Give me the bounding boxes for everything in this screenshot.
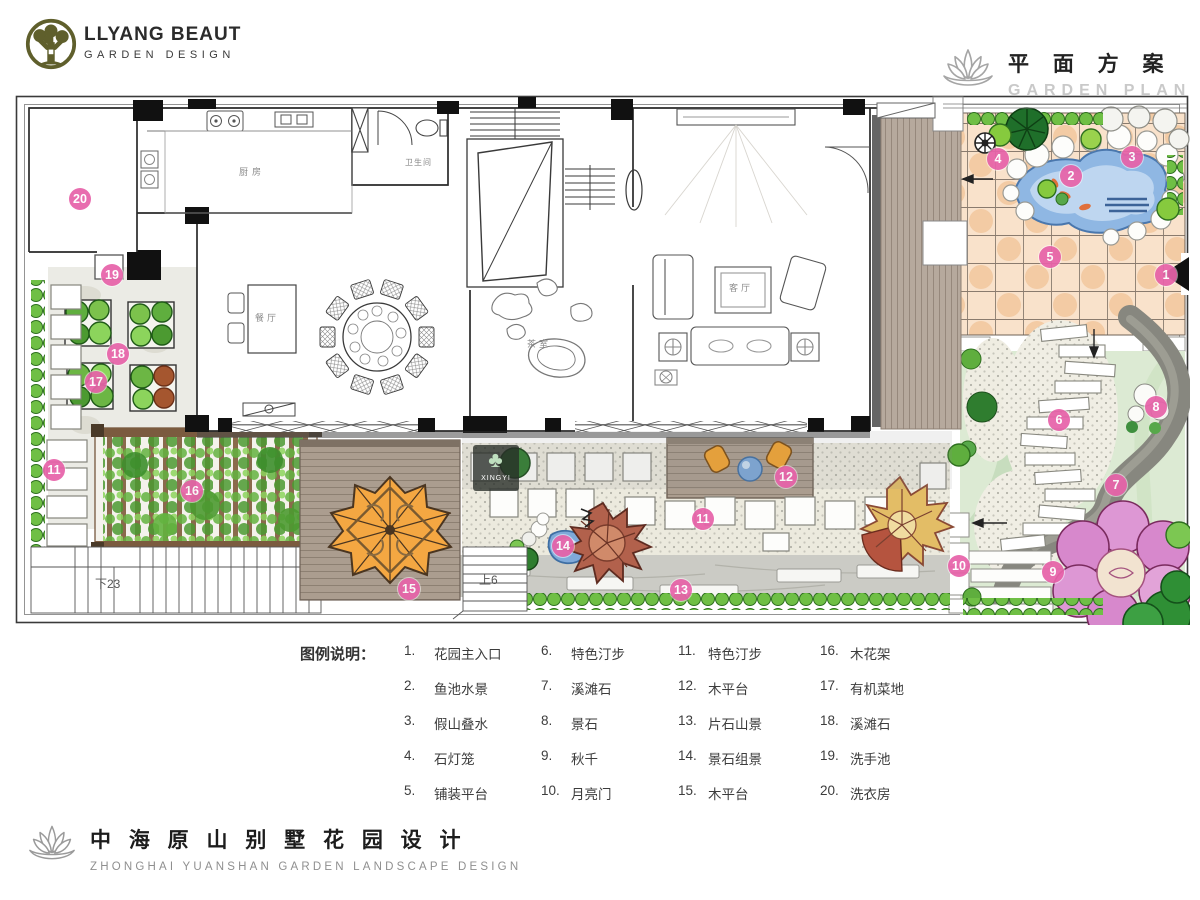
legend-item: 10.月亮门 [541,783,625,818]
project-title-en: ZHONGHAI YUANSHAN GARDEN LANDSCAPE DESIG… [90,861,521,873]
legend-item: 3.假山叠水 [404,713,502,748]
lotus-icon [942,44,994,92]
legend-item: 6.特色汀步 [541,643,625,678]
legend-item: 8.景石 [541,713,625,748]
legend-item: 20.洗衣房 [820,783,904,818]
plan-title-lotus [942,44,994,97]
brand-text: LLYANG BEAUT GARDEN DESIGN [84,24,241,61]
legend-item: 11.特色汀步 [678,643,762,678]
legend-item: 7.溪滩石 [541,678,625,713]
project-title-cn: 中 海 原 山 别 墅 花 园 设 计 [90,824,521,854]
brand-logo [25,18,77,75]
legend-item: 15.木平台 [678,783,762,818]
footer-title: 中 海 原 山 别 墅 花 园 设 计 ZHONGHAI YUANSHAN GA… [90,824,521,873]
hedge-right [963,598,1103,615]
legend-item: 19.洗手池 [820,748,904,783]
legend-item: 1.花园主入口 [404,643,502,678]
tree-logo-icon [25,18,77,70]
legend-column-1: 1.花园主入口 2.鱼池水景 3.假山叠水 4.石灯笼 5.铺装平台 [404,643,502,818]
legend-heading: 图例说明： [300,643,375,664]
footer-lotus [28,820,76,871]
plan-svg [15,95,1190,625]
legend-item: 13.片石山景 [678,713,762,748]
lotus-icon [28,820,76,866]
legend-item: 5.铺装平台 [404,783,502,818]
legend-item: 17.有机菜地 [820,678,904,713]
watermark-band [462,431,952,489]
garden-plan-drawing [15,95,1190,625]
plan-title-cn: 平 面 方 案 [1008,48,1191,78]
legend-column-3: 11.特色汀步 12.木平台 13.片石山景 14.景石组景 15.木平台 [678,643,762,818]
legend-item: 4.石灯笼 [404,748,502,783]
brand-line1: LLYANG BEAUT [84,24,241,46]
wall-shadow [872,115,881,427]
stairs-down [31,547,321,613]
deck-parasol-area [300,440,460,600]
legend-item: 12.木平台 [678,678,762,713]
legend-item: 16.木花架 [820,643,904,678]
pergola [89,424,323,566]
stone-lantern [975,133,995,153]
stairs-up [453,547,527,619]
hedge-bottom [512,593,950,610]
page: { "header": { "brand_line1": "LLYANG BEA… [0,0,1200,900]
legend-item: 18.溪滩石 [820,713,904,748]
legend-item: 14.景石组景 [678,748,762,783]
wash-basin [95,250,161,280]
legend-column-2: 6.特色汀步 7.溪滩石 8.景石 9.秋千 10.月亮门 [541,643,625,818]
legend-item: 2.鱼池水景 [404,678,502,713]
plan-title: 平 面 方 案 GARDEN PLAN [1008,48,1191,100]
brand-line2: GARDEN DESIGN [84,49,241,61]
legend-column-4: 16.木花架 17.有机菜地 18.溪滩石 19.洗手池 20.洗衣房 [820,643,904,818]
legend-item: 9.秋千 [541,748,625,783]
